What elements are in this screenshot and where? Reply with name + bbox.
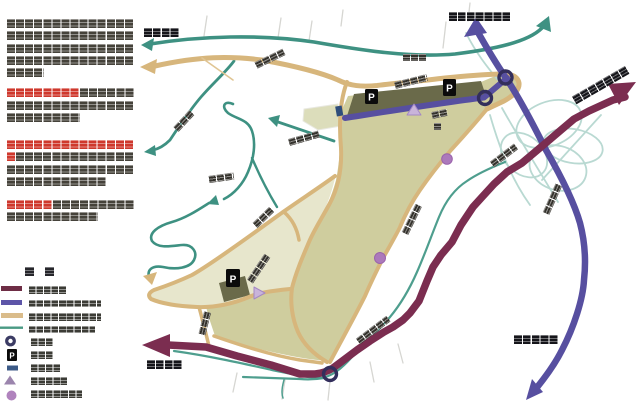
svg-text:P: P — [446, 84, 453, 95]
svg-text:P: P — [368, 93, 375, 104]
svg-text:P: P — [230, 275, 237, 286]
svg-text:P: P — [9, 352, 15, 361]
